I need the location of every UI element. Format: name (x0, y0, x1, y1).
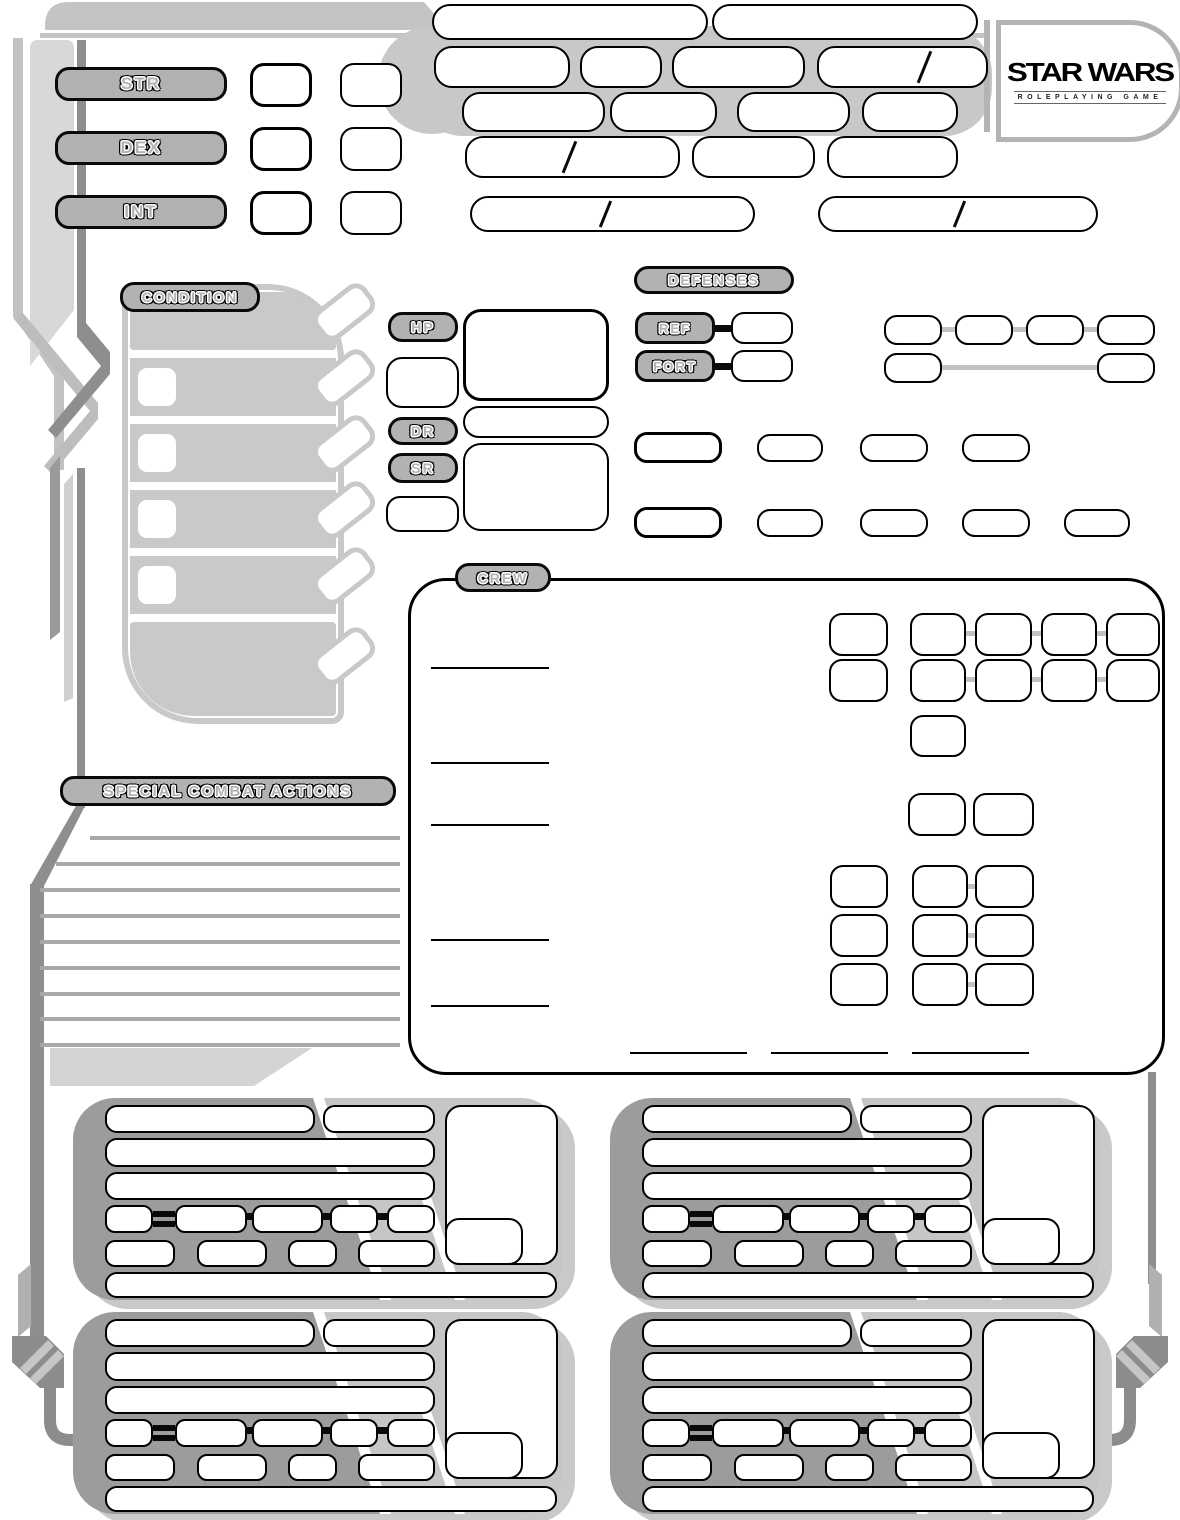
weapon-stat-field-4[interactable] (895, 1240, 972, 1267)
attack-chain-link (245, 1427, 254, 1434)
crew-position-line-2[interactable] (431, 762, 549, 764)
crew-row2-field-2[interactable] (910, 659, 966, 702)
crew-row1-field-5[interactable] (1106, 613, 1160, 656)
dex-score-field[interactable] (250, 127, 312, 171)
weapon-stat-field-2[interactable] (734, 1454, 804, 1481)
defense-row2-field-1[interactable] (634, 507, 722, 538)
ref-mod-field-2[interactable] (955, 315, 1013, 345)
attack-bonus-field-3[interactable] (789, 1205, 860, 1233)
crew-row2-field-1[interactable] (829, 659, 888, 702)
brand-logo: STAR WARS ROLEPLAYING GAME (996, 20, 1180, 142)
dr-field[interactable] (463, 406, 609, 438)
crew-position-line-3[interactable] (431, 824, 549, 826)
weapon-type-field[interactable] (860, 1105, 972, 1133)
weapon-type-field[interactable] (323, 1105, 435, 1133)
weapon-detail-field-2[interactable] (105, 1386, 435, 1414)
crew-position-line-4[interactable] (431, 939, 549, 941)
weapon-block-2 (610, 1098, 1112, 1310)
attack-chain-link (690, 1435, 712, 1441)
slash-divider (953, 201, 966, 228)
slash-divider (562, 141, 577, 173)
weapon-type-field[interactable] (860, 1319, 972, 1347)
weapon-stat-field-3[interactable] (825, 1240, 874, 1267)
attack-chain-link (153, 1211, 175, 1217)
weapon-type-field[interactable] (323, 1319, 435, 1347)
attack-chain-link (914, 1427, 925, 1434)
header-field-1[interactable] (432, 4, 708, 40)
attack-chain-link (690, 1211, 712, 1217)
ability-label-dex: DEX (55, 131, 227, 165)
crew-grid-r2-field-2[interactable] (912, 914, 968, 957)
attack-chain-link (859, 1213, 868, 1220)
weapon-stat-field-3[interactable] (825, 1454, 874, 1481)
attack-chain-link (322, 1213, 331, 1220)
attack-bonus-field-1[interactable] (105, 1205, 153, 1233)
weapon-stat-field-1[interactable] (105, 1240, 175, 1267)
attack-bonus-field-2[interactable] (175, 1419, 247, 1447)
weapon-stat-field-2[interactable] (197, 1454, 267, 1481)
attack-chain-link (690, 1425, 712, 1431)
attack-chain-link (782, 1213, 791, 1220)
attack-bonus-field-3[interactable] (252, 1419, 323, 1447)
fort-chain-link (940, 365, 1100, 370)
header-field-10[interactable] (862, 92, 958, 132)
condition-checkbox-1[interactable] (138, 368, 176, 406)
condition-step-3 (130, 490, 336, 548)
fort-defense-label: FORT (635, 350, 715, 382)
crew-row2-field-3[interactable] (975, 659, 1032, 702)
hp-total-field[interactable] (463, 309, 609, 401)
sr-label: SR (388, 453, 458, 483)
attack-bonus-field-4[interactable] (330, 1205, 378, 1233)
fort-defense-field[interactable] (731, 350, 793, 382)
weapon-damage-mod-field[interactable] (982, 1432, 1060, 1479)
weapon-stat-field-4[interactable] (895, 1454, 972, 1481)
attack-chain-link (153, 1425, 175, 1431)
crew-pair-field-1[interactable] (908, 793, 966, 836)
attack-bonus-field-1[interactable] (642, 1205, 690, 1233)
header-field-15-split[interactable] (818, 196, 1098, 232)
crew-row2-field-4[interactable] (1041, 659, 1097, 702)
slash-divider (599, 201, 612, 228)
condition-step-5 (130, 622, 336, 716)
slash-divider (916, 51, 931, 83)
defense-row1-field-2[interactable] (757, 434, 823, 462)
fort-connector (712, 363, 732, 370)
weapon-notes-field[interactable] (105, 1272, 557, 1298)
crew-single-field[interactable] (910, 715, 966, 757)
attack-bonus-field-1[interactable] (642, 1419, 690, 1447)
attack-bonus-field-2[interactable] (712, 1419, 784, 1447)
weapon-block-1 (73, 1098, 575, 1310)
defense-row1-field-1[interactable] (634, 432, 722, 463)
hp-label: HP (388, 312, 458, 342)
weapon-stat-field-3[interactable] (288, 1240, 337, 1267)
attack-bonus-field-4[interactable] (330, 1419, 378, 1447)
crew-label: CREW (455, 563, 551, 592)
weapon-name-field[interactable] (105, 1105, 315, 1133)
crew-grid-r3-field-2[interactable] (912, 963, 968, 1006)
header-field-9[interactable] (737, 92, 850, 132)
crew-grid-r3-field-1[interactable] (830, 963, 888, 1006)
defense-row2-field-3[interactable] (860, 509, 928, 537)
header-field-6-split[interactable] (817, 46, 988, 88)
condition-checkbox-2[interactable] (138, 434, 176, 472)
int-score-field[interactable] (250, 191, 312, 235)
crew-grid-r2-field-1[interactable] (830, 914, 888, 957)
header-field-12[interactable] (692, 136, 815, 178)
weapon-detail-field-1[interactable] (105, 1352, 435, 1381)
str-score-field[interactable] (250, 63, 312, 107)
attack-bonus-field-1[interactable] (105, 1419, 153, 1447)
weapon-stat-field-3[interactable] (288, 1454, 337, 1481)
defense-row2-field-2[interactable] (757, 509, 823, 537)
header-field-11-split[interactable] (465, 136, 680, 178)
crew-footer-line-1[interactable] (630, 1052, 747, 1054)
attack-bonus-field-3[interactable] (252, 1205, 323, 1233)
crew-grid-r3-field-3[interactable] (975, 963, 1034, 1006)
weapon-notes-field[interactable] (642, 1486, 1094, 1512)
ref-mod-field-3[interactable] (1026, 315, 1084, 345)
attack-chain-link (322, 1427, 331, 1434)
attack-chain-link (690, 1221, 712, 1227)
int-mod-field[interactable] (340, 191, 402, 235)
crew-grid-r1-field-1[interactable] (830, 865, 888, 908)
header-field-2[interactable] (712, 4, 978, 40)
attack-chain-link (377, 1213, 388, 1220)
defenses-label: DEFENSES (634, 266, 794, 294)
special-combat-actions-label: SPECIAL COMBAT ACTIONS (60, 776, 396, 806)
weapon-name-field[interactable] (105, 1319, 315, 1347)
weapon-stat-field-4[interactable] (358, 1240, 435, 1267)
vehicle-sheet: STAR WARS ROLEPLAYING GAME STR DEX INT C… (0, 0, 1180, 1520)
crew-row1-field-2[interactable] (910, 613, 966, 656)
sr-secondary-field[interactable] (386, 496, 459, 532)
crew-position-line-1[interactable] (431, 667, 549, 669)
weapon-notes-field[interactable] (105, 1486, 557, 1512)
crew-grid-r1-field-3[interactable] (975, 865, 1034, 908)
header-field-5[interactable] (672, 46, 805, 88)
crew-grid-r2-field-3[interactable] (975, 914, 1034, 957)
condition-step-4 (130, 556, 336, 614)
weapon-damage-mod-field[interactable] (445, 1432, 523, 1479)
attack-bonus-field-4[interactable] (867, 1419, 915, 1447)
fort-mod-field-2[interactable] (1097, 353, 1155, 383)
crew-grid-r1-field-2[interactable] (912, 865, 968, 908)
crew-row2-field-5[interactable] (1106, 659, 1160, 702)
ability-label-str: STR (55, 67, 227, 101)
attack-chain-link (377, 1427, 388, 1434)
brand-subtitle: ROLEPLAYING GAME (1014, 91, 1167, 104)
fort-mod-field-1[interactable] (884, 353, 942, 383)
attack-bonus-field-2[interactable] (175, 1205, 247, 1233)
attack-bonus-field-4[interactable] (867, 1205, 915, 1233)
condition-label: CONDITION (120, 282, 260, 312)
special-combat-actions-notes[interactable] (38, 820, 404, 1052)
attack-bonus-field-2[interactable] (712, 1205, 784, 1233)
hp-threshold-field[interactable] (386, 357, 459, 408)
attack-bonus-field-5[interactable] (924, 1419, 972, 1447)
weapon-detail-field-1[interactable] (642, 1138, 972, 1167)
weapon-detail-field-2[interactable] (105, 1172, 435, 1200)
header-field-14-split[interactable] (470, 196, 755, 232)
header-field-13[interactable] (827, 136, 958, 178)
attack-chain-link (782, 1427, 791, 1434)
header-field-8[interactable] (610, 92, 717, 132)
str-mod-field[interactable] (340, 63, 402, 107)
weapon-notes-field[interactable] (642, 1272, 1094, 1298)
brand-title: STAR WARS (1007, 60, 1173, 86)
attack-bonus-field-5[interactable] (387, 1419, 435, 1447)
weapon-stat-field-2[interactable] (197, 1240, 267, 1267)
header-field-3[interactable] (434, 46, 570, 88)
condition-step-2 (130, 424, 336, 482)
weapon-damage-mod-field[interactable] (982, 1218, 1060, 1265)
ref-mod-field-4[interactable] (1097, 315, 1155, 345)
ref-defense-label: REF (635, 312, 715, 344)
weapon-damage-mod-field[interactable] (445, 1218, 523, 1265)
header-field-4[interactable] (580, 46, 662, 88)
crew-row1-field-4[interactable] (1041, 613, 1097, 656)
attack-bonus-field-5[interactable] (387, 1205, 435, 1233)
attack-chain-link (859, 1427, 868, 1434)
crew-footer-line-3[interactable] (912, 1052, 1029, 1054)
weapon-stat-field-1[interactable] (642, 1454, 712, 1481)
crew-position-line-5[interactable] (431, 1005, 549, 1007)
attack-chain-link (914, 1213, 925, 1220)
ref-mod-field-1[interactable] (884, 315, 942, 345)
defense-row2-field-5[interactable] (1064, 509, 1130, 537)
crew-row1-field-3[interactable] (975, 613, 1032, 656)
weapon-block-4 (610, 1312, 1112, 1520)
condition-step-1 (130, 358, 336, 416)
weapon-name-field[interactable] (642, 1105, 852, 1133)
weapon-detail-field-1[interactable] (642, 1352, 972, 1381)
defense-row1-field-4[interactable] (962, 434, 1030, 462)
attack-chain-link (245, 1213, 254, 1220)
condition-checkbox-3[interactable] (138, 500, 176, 538)
attack-bonus-field-5[interactable] (924, 1205, 972, 1233)
defense-row2-field-4[interactable] (962, 509, 1030, 537)
weapon-stat-field-2[interactable] (734, 1240, 804, 1267)
dex-mod-field[interactable] (340, 127, 402, 171)
weapon-name-field[interactable] (642, 1319, 852, 1347)
attack-chain-link (153, 1221, 175, 1227)
defense-row1-field-3[interactable] (860, 434, 928, 462)
weapon-detail-field-2[interactable] (642, 1386, 972, 1414)
ref-connector (712, 325, 732, 332)
crew-row1-field-1[interactable] (829, 613, 888, 656)
weapon-stat-field-4[interactable] (358, 1454, 435, 1481)
attack-chain-link (153, 1435, 175, 1441)
attack-bonus-field-3[interactable] (789, 1419, 860, 1447)
crew-pair-field-2[interactable] (973, 793, 1034, 836)
weapon-stat-field-1[interactable] (105, 1454, 175, 1481)
crew-footer-line-2[interactable] (771, 1052, 888, 1054)
sr-field[interactable] (463, 443, 609, 531)
dr-label: DR (388, 417, 458, 445)
weapon-stat-field-1[interactable] (642, 1240, 712, 1267)
weapon-detail-field-2[interactable] (642, 1172, 972, 1200)
weapon-detail-field-1[interactable] (105, 1138, 435, 1167)
weapon-block-3 (73, 1312, 575, 1520)
header-field-7[interactable] (462, 92, 605, 132)
ability-label-int: INT (55, 195, 227, 229)
condition-checkbox-4[interactable] (138, 566, 176, 604)
ref-defense-field[interactable] (731, 312, 793, 344)
